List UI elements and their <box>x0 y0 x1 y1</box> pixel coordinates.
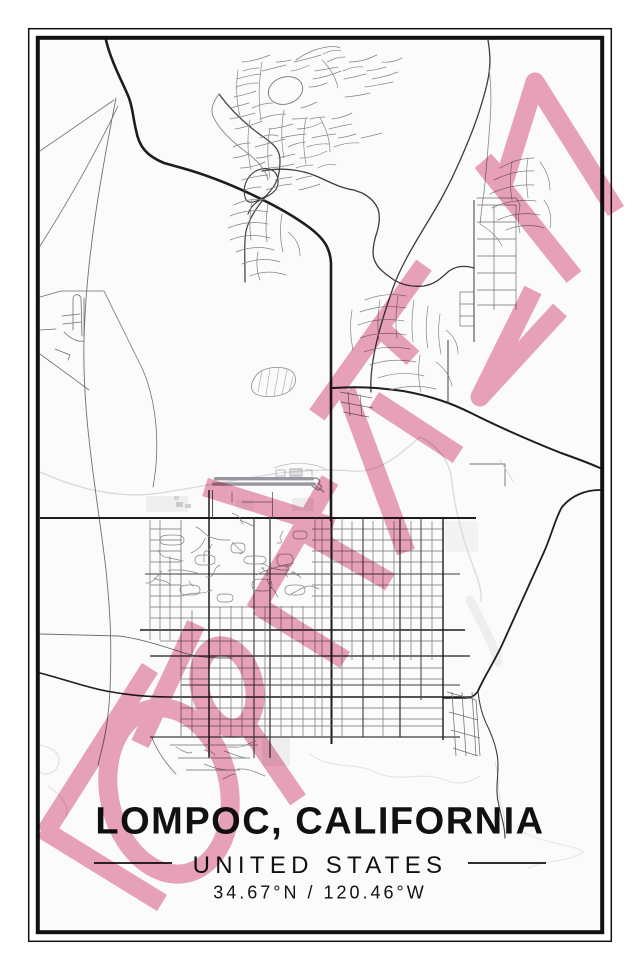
svg-text:UNITED STATES: UNITED STATES <box>193 852 448 879</box>
svg-text:LOMPOC, CALIFORNIA: LOMPOC, CALIFORNIA <box>95 801 544 843</box>
svg-text:34.67°N / 120.46°W: 34.67°N / 120.46°W <box>213 883 427 903</box>
